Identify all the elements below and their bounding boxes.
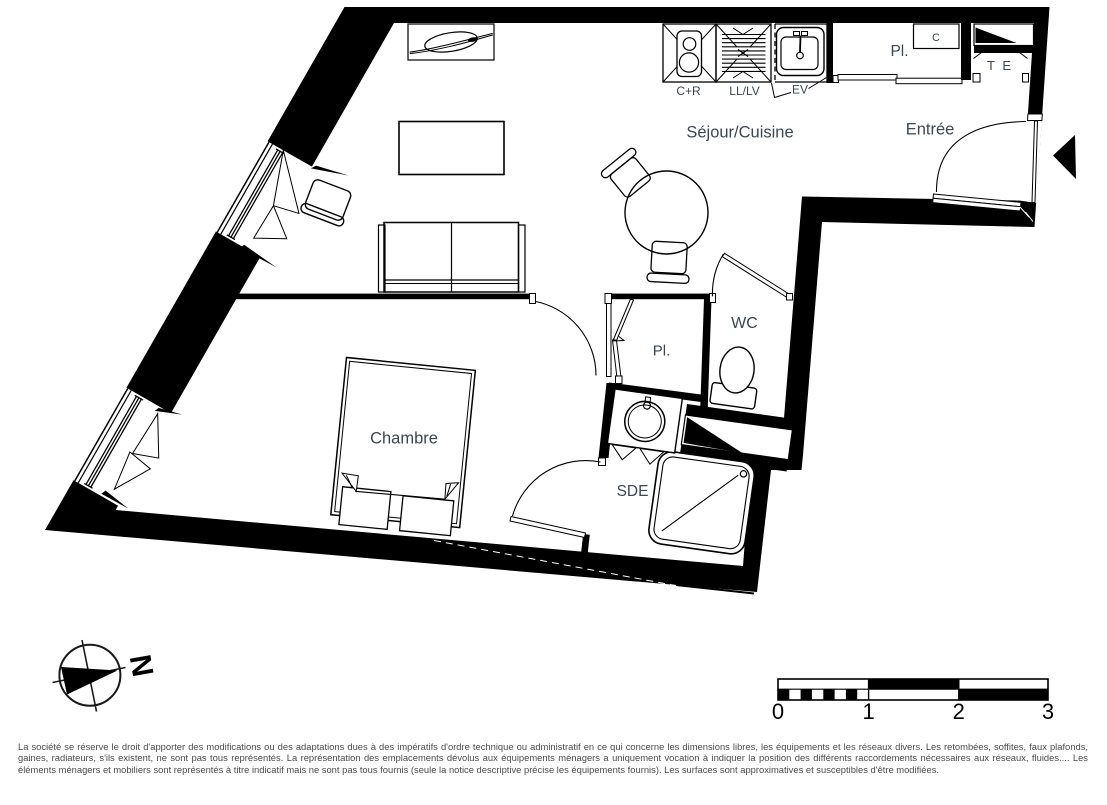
svg-text:C: C [932, 32, 940, 44]
svg-text:Pl.: Pl. [890, 43, 908, 60]
svg-text:0: 0 [772, 699, 784, 724]
svg-text:1: 1 [862, 699, 874, 724]
svg-text:Entrée: Entrée [906, 121, 955, 139]
svg-text:Séjour/Cuisine: Séjour/Cuisine [686, 124, 793, 142]
svg-text:2: 2 [953, 699, 965, 724]
svg-text:EV: EV [792, 83, 808, 97]
svg-text:T E: T E [987, 58, 1013, 73]
svg-text:Pl.: Pl. [653, 343, 671, 360]
svg-text:WC: WC [731, 315, 758, 332]
svg-text:SDE: SDE [617, 483, 649, 500]
svg-text:C+R: C+R [676, 84, 701, 98]
svg-text:Chambre: Chambre [370, 430, 438, 448]
svg-text:3: 3 [1042, 699, 1054, 724]
svg-text:LL/LV: LL/LV [729, 84, 759, 98]
